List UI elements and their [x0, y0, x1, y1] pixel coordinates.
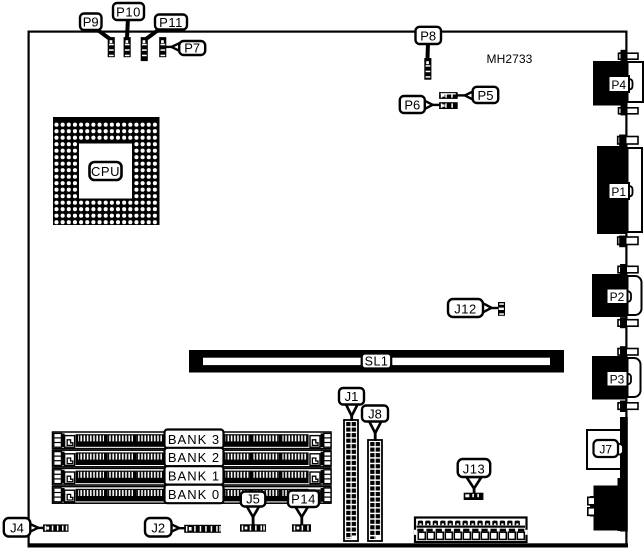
svg-text:J5: J5 [246, 492, 260, 507]
svg-text:P6: P6 [404, 98, 420, 113]
svg-text:BANK 2: BANK 2 [168, 450, 220, 465]
svg-text:P10: P10 [116, 4, 141, 19]
svg-text:P8: P8 [420, 29, 436, 44]
svg-text:P1: P1 [611, 185, 626, 199]
svg-text:CPU: CPU [91, 164, 120, 179]
svg-text:J1: J1 [345, 389, 359, 404]
svg-text:P7: P7 [184, 40, 200, 55]
svg-text:J12: J12 [454, 301, 476, 316]
svg-text:BANK 0: BANK 0 [168, 487, 220, 502]
svg-text:J4: J4 [10, 521, 24, 536]
svg-text:J8: J8 [368, 406, 382, 421]
svg-text:BANK 3: BANK 3 [168, 432, 220, 447]
svg-text:J2: J2 [151, 521, 165, 536]
svg-text:BANK 1: BANK 1 [168, 469, 220, 484]
svg-text:P5: P5 [478, 88, 494, 103]
svg-text:MH2733: MH2733 [487, 52, 533, 66]
svg-text:P2: P2 [610, 290, 625, 304]
svg-text:J7: J7 [599, 443, 612, 457]
svg-text:P3: P3 [610, 372, 625, 386]
svg-text:P11: P11 [159, 15, 183, 30]
svg-text:SL1: SL1 [365, 355, 389, 369]
svg-text:P4: P4 [611, 78, 626, 92]
svg-text:J13: J13 [463, 461, 485, 476]
svg-text:P9: P9 [83, 15, 99, 30]
svg-text:P14: P14 [291, 492, 316, 507]
